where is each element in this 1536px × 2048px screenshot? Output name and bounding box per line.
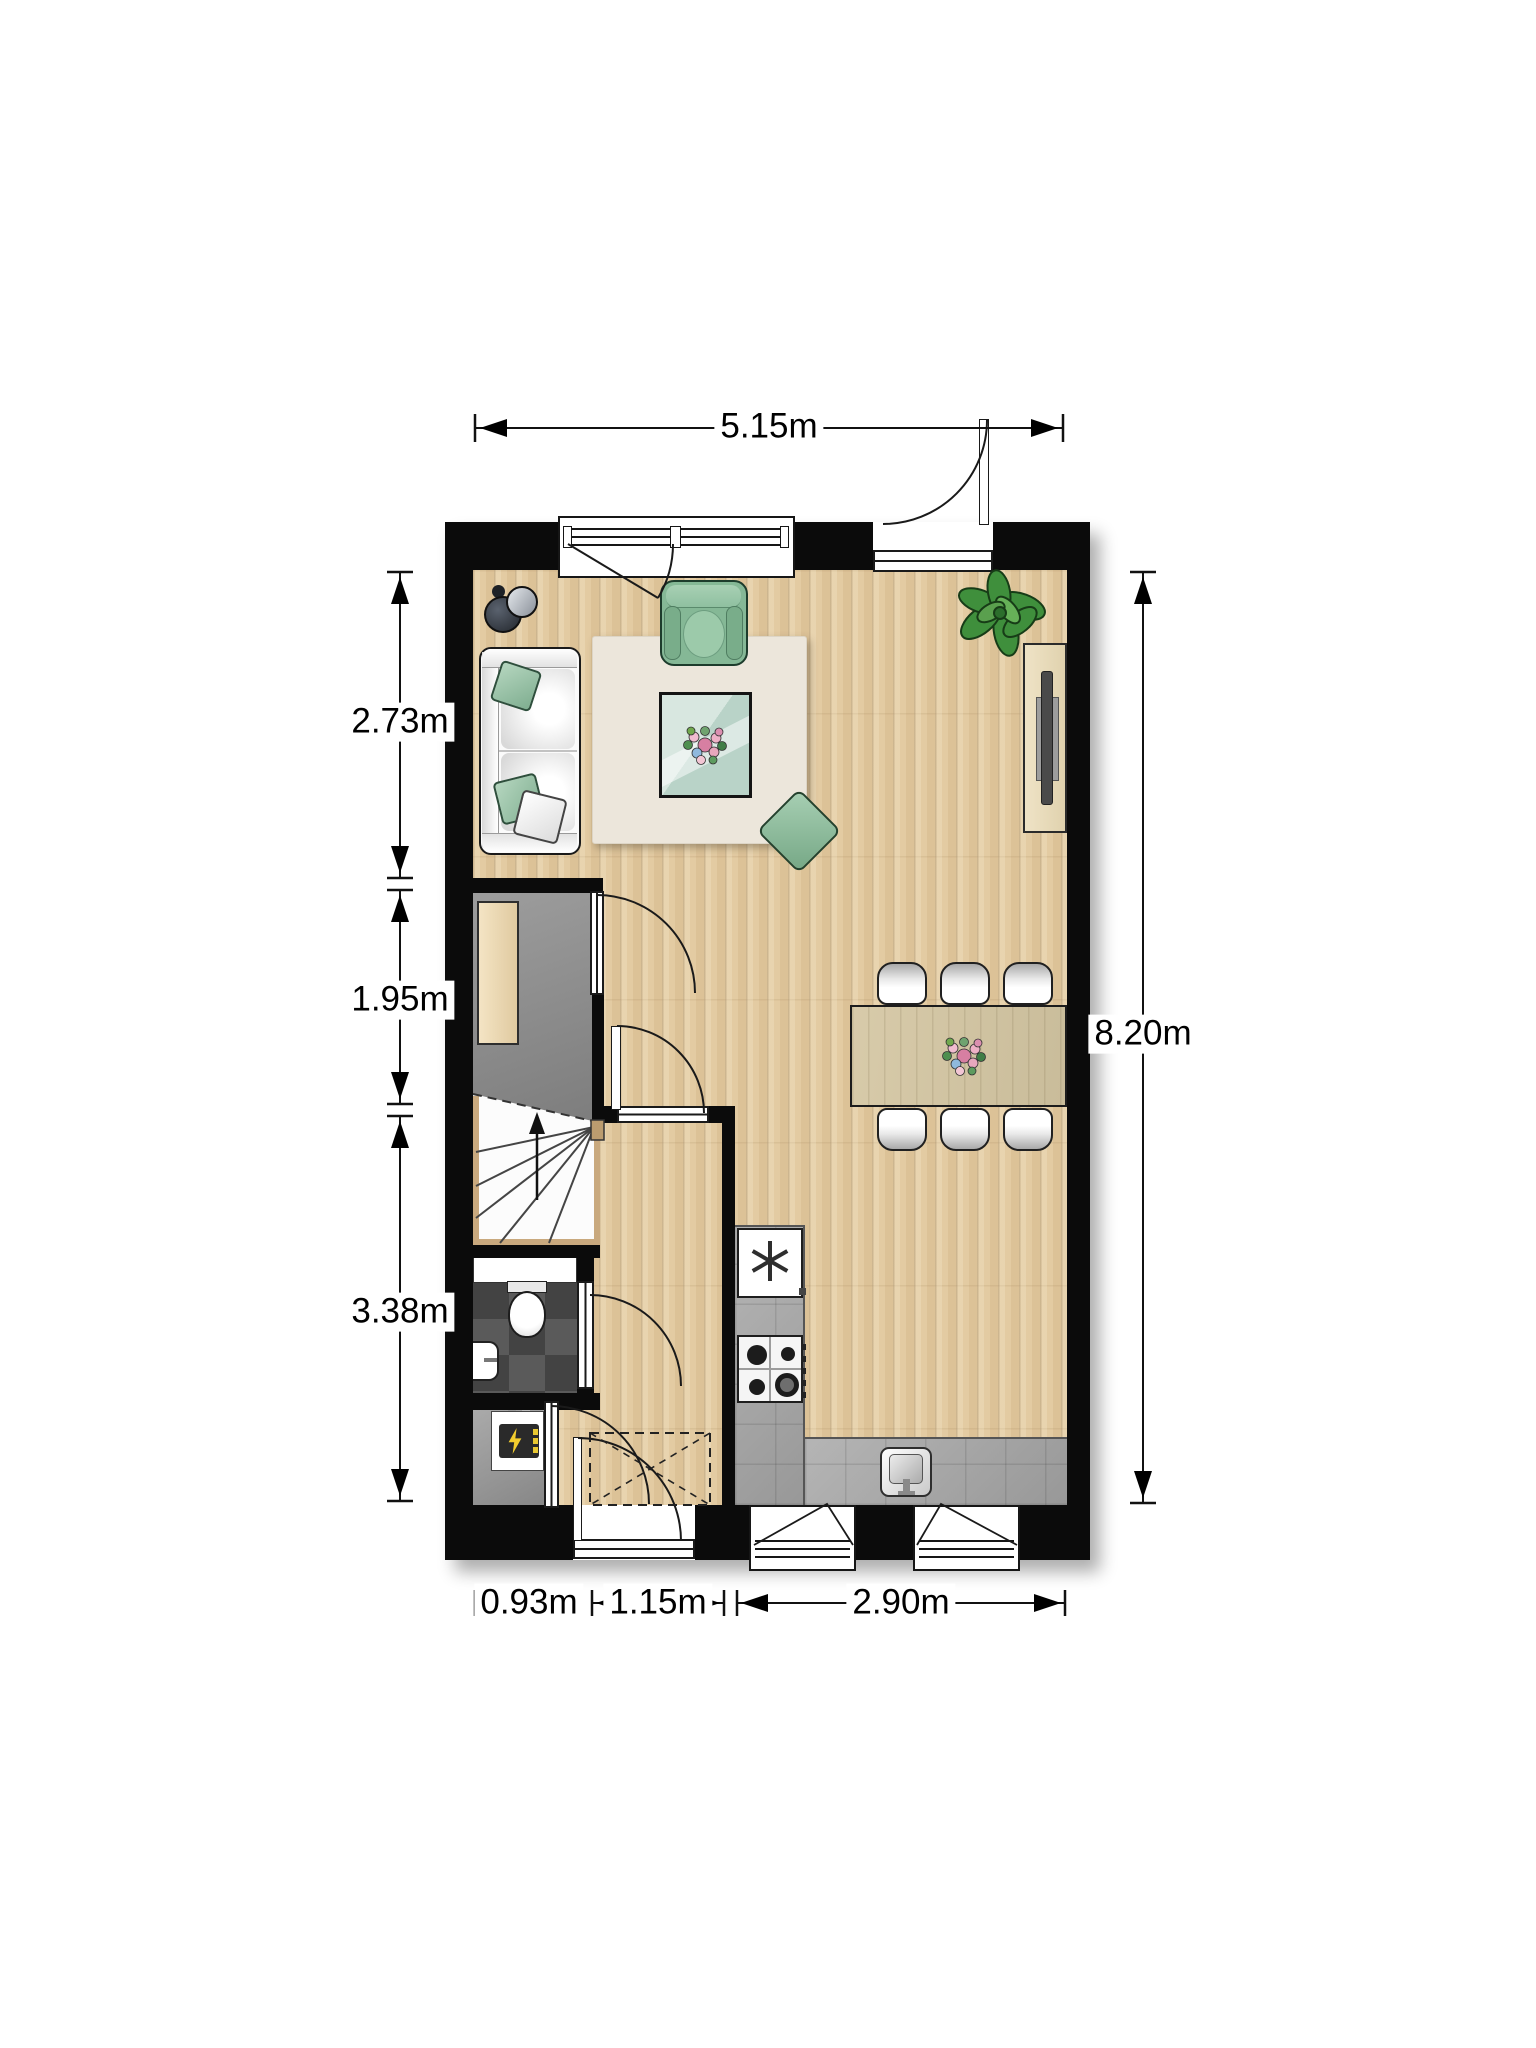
window-mullion — [563, 526, 572, 548]
meter-door-frame — [544, 1401, 559, 1508]
sink-tap-handle — [898, 1491, 915, 1495]
wall-toilet-top — [473, 1243, 600, 1258]
kitchen-sink — [880, 1447, 932, 1497]
floor-plan: 5.15m 2.73m 1.95m 3.38m 8.20m 0.93m 1.15… — [0, 0, 1536, 2048]
dimension-label-right: 8.20m — [1088, 1015, 1197, 1054]
meter-terminal — [533, 1447, 538, 1453]
inner-door-leaf — [611, 1026, 621, 1110]
gas-hob — [737, 1335, 803, 1403]
dining-table — [850, 1005, 1067, 1107]
coffee-table — [659, 692, 752, 798]
sofa-seat-divider — [499, 750, 577, 752]
armchair-seat — [683, 610, 725, 658]
inner-door-frame — [617, 1106, 709, 1123]
tv-screen — [1041, 671, 1053, 805]
dimension-label-bottom-3: 2.90m — [846, 1584, 955, 1623]
wall-meter-top — [473, 1393, 600, 1410]
window-bottom-left — [749, 1505, 856, 1571]
window-mullion — [670, 526, 681, 548]
armchair-arm — [726, 606, 743, 660]
toilet-shelf — [473, 1257, 577, 1283]
armchair-back — [666, 585, 741, 608]
front-door-swing-arc — [883, 420, 987, 524]
fridge-hinge — [799, 1288, 806, 1295]
dining-chair — [877, 962, 927, 1005]
sofa-armrest — [482, 649, 577, 668]
dimension-label-left-1: 2.73m — [345, 703, 454, 742]
toilet-door-frame — [577, 1281, 594, 1389]
entry-door-leaf — [573, 1437, 582, 1541]
burner — [749, 1379, 765, 1395]
meter-terminal — [533, 1429, 538, 1435]
dimension-label-bottom-2: 1.15m — [603, 1584, 712, 1623]
window-bottom-right — [913, 1505, 1020, 1571]
wall-kitchen — [722, 1106, 735, 1505]
wall-hall-top — [473, 878, 603, 893]
front-door-threshold — [873, 550, 993, 572]
window-top — [558, 516, 795, 578]
armchair — [660, 580, 748, 666]
dining-chair — [940, 962, 990, 1005]
dining-chair — [1003, 1108, 1053, 1151]
wall-toilet-right-upper — [577, 1257, 594, 1283]
burner — [781, 1347, 795, 1361]
armchair-arm — [664, 606, 681, 660]
window-mullion — [780, 526, 789, 548]
dining-chair — [1003, 962, 1053, 1005]
dimension-label-bottom-1: 0.93m — [474, 1584, 583, 1623]
refrigerator — [737, 1228, 803, 1298]
dimension-label-left-2: 1.95m — [345, 981, 454, 1020]
dining-chair — [877, 1108, 927, 1151]
hall-closet — [477, 901, 519, 1045]
basin-tap — [484, 1358, 497, 1362]
floor-lamp-shade — [506, 586, 538, 618]
entry-door-threshold — [573, 1539, 695, 1559]
dining-chair — [940, 1108, 990, 1151]
kitchen-counter-bottom — [805, 1437, 1067, 1505]
lightning-icon — [507, 1428, 523, 1454]
window-glazing — [755, 1540, 850, 1558]
front-door-leaf — [979, 419, 989, 525]
wall-hall-right — [592, 993, 604, 1123]
window-glazing — [919, 1540, 1014, 1558]
dimension-label-left-3: 3.38m — [345, 1293, 454, 1332]
sofa — [479, 647, 581, 855]
toilet-bowl — [508, 1291, 546, 1338]
hall-door-frame — [590, 891, 604, 995]
burner — [747, 1345, 767, 1365]
burner — [775, 1373, 799, 1397]
hob-knobs — [801, 1342, 806, 1398]
meter-terminal — [533, 1438, 538, 1444]
coffee-table-glass-sheen — [659, 709, 752, 790]
dimension-label-top: 5.15m — [714, 408, 823, 447]
tv-cabinet — [1023, 643, 1067, 833]
meter-box — [499, 1424, 539, 1458]
